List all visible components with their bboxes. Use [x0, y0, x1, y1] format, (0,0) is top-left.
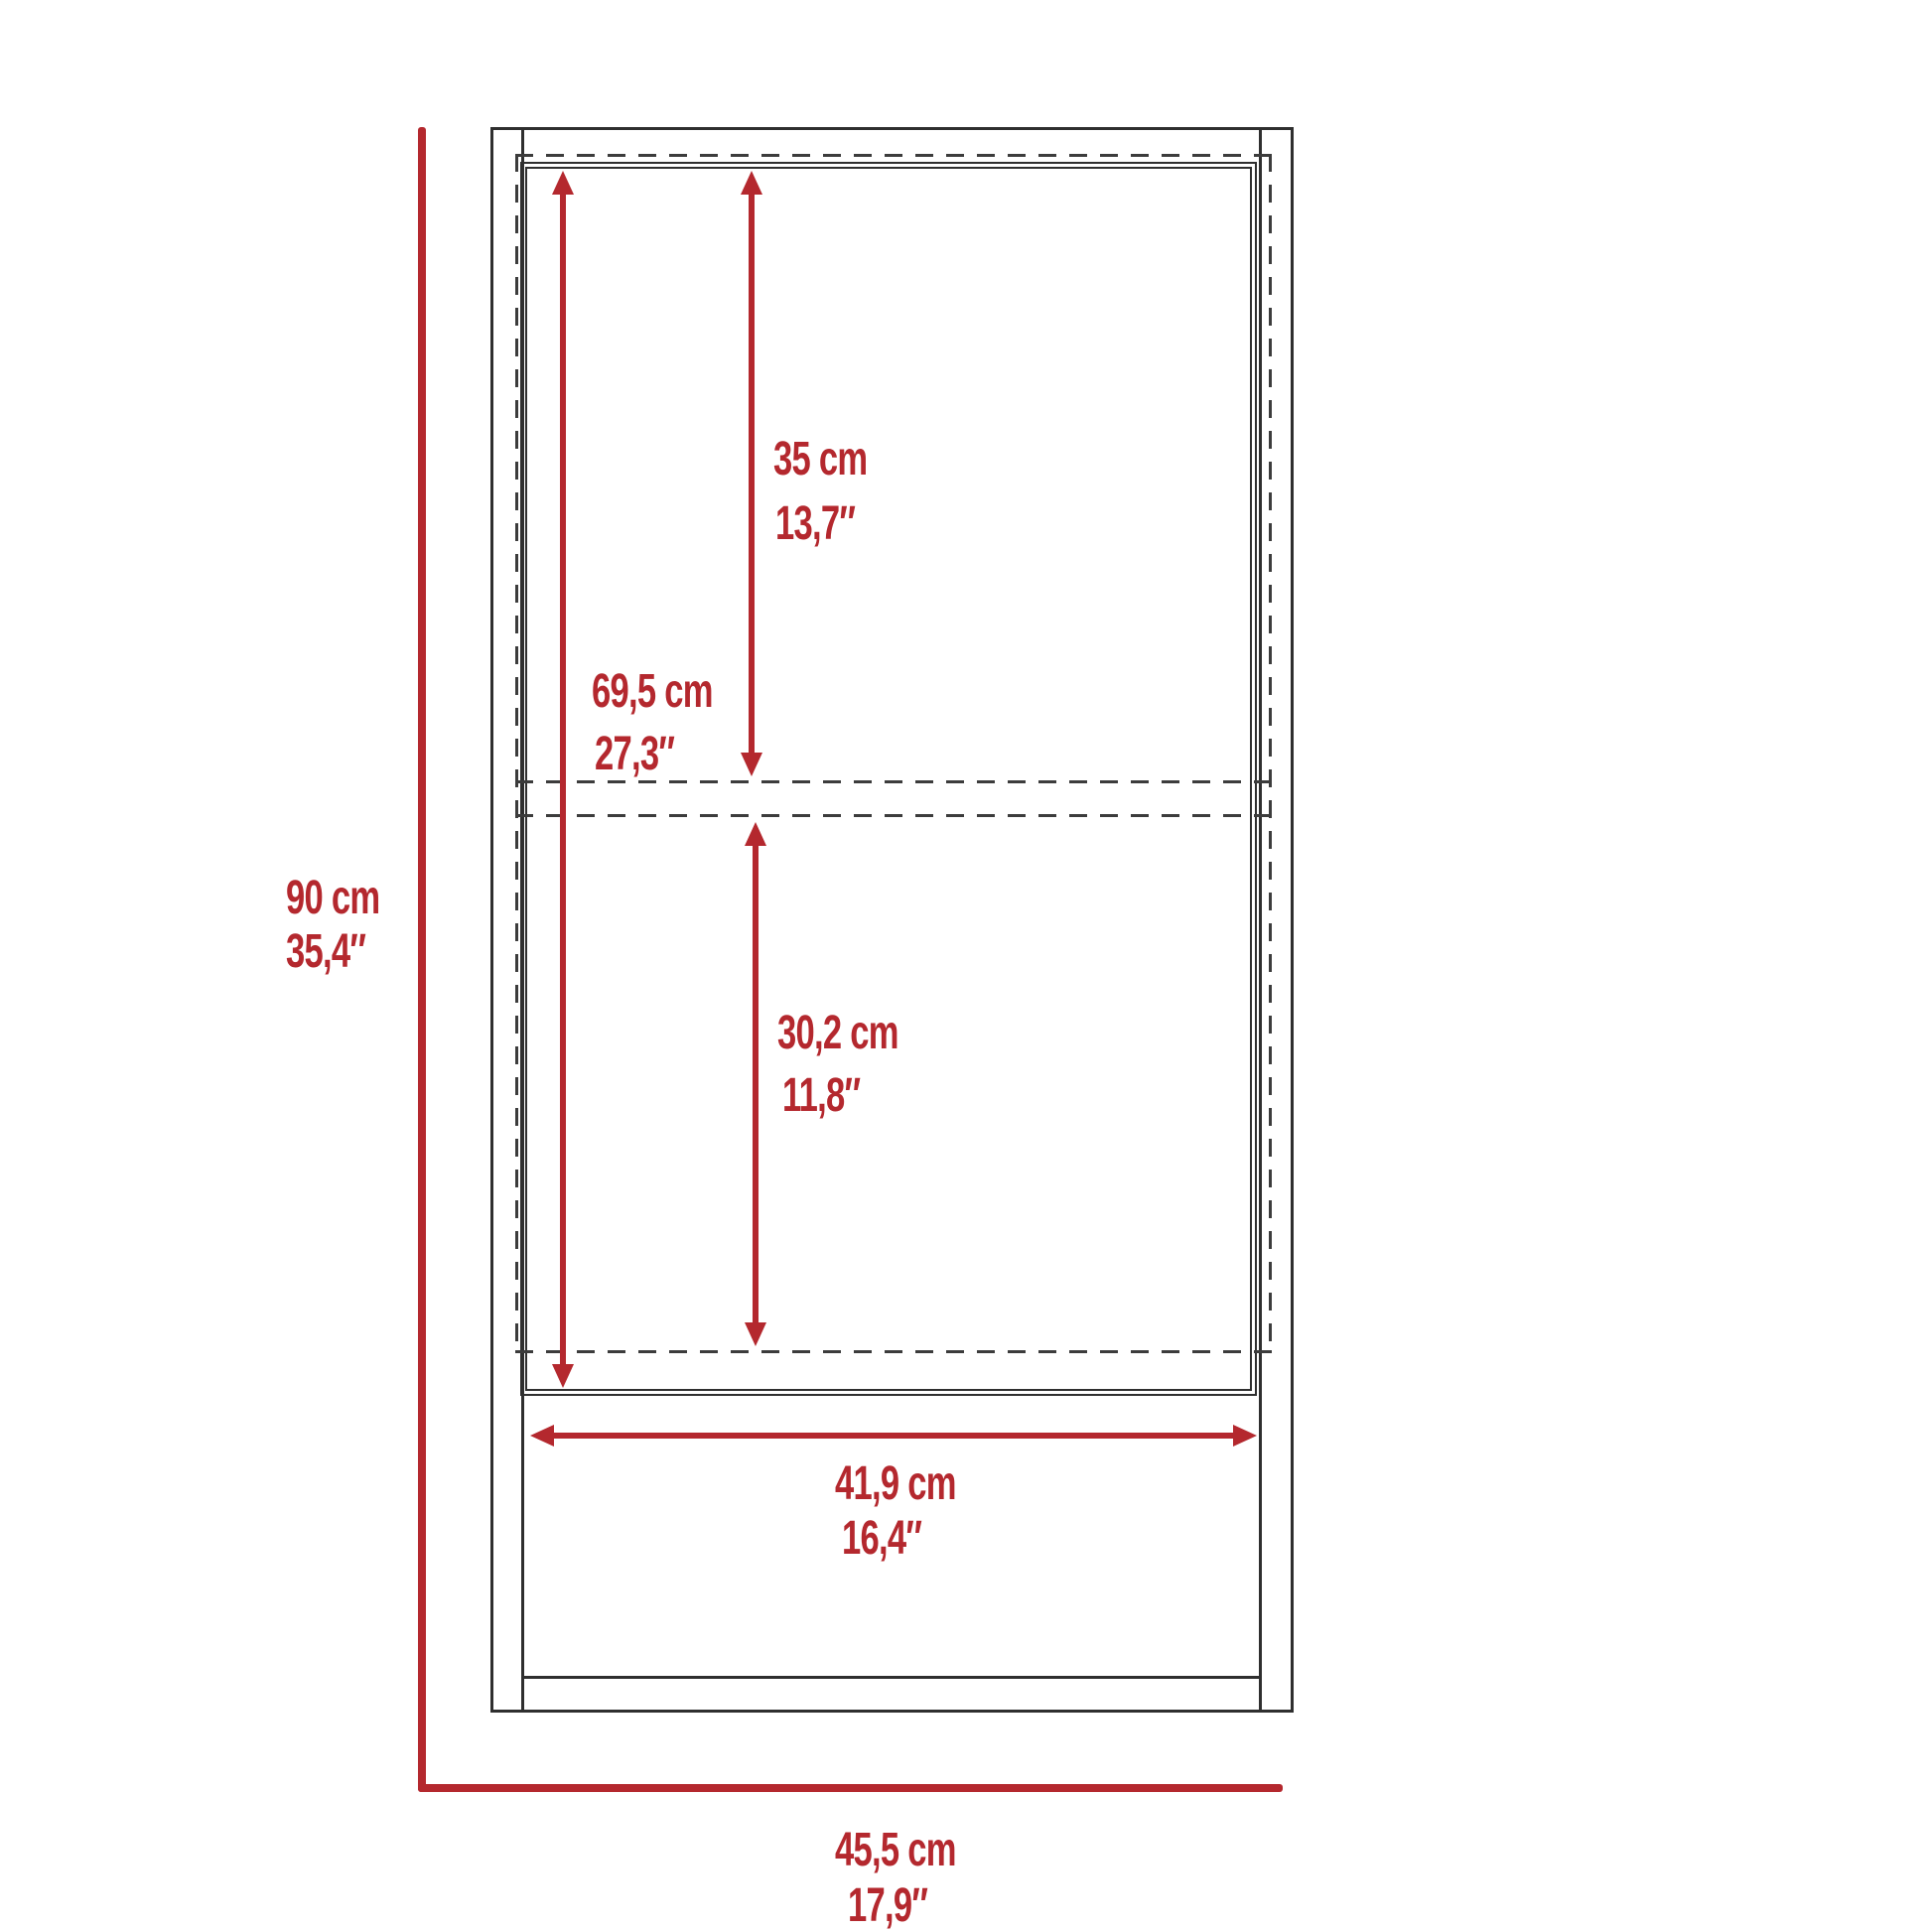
- upper-section-height-label-in: 13,7″: [775, 499, 855, 549]
- hidden-shelf-lower-line: [515, 814, 1272, 817]
- hidden-left-edge-line: [515, 154, 518, 1353]
- overall-width-dimension-line: [418, 1784, 1283, 1792]
- lower-section-height-label-in: 11,8″: [782, 1071, 860, 1121]
- door-height-label-in: 27,3″: [595, 730, 674, 779]
- arrow-down-icon: [552, 1364, 574, 1388]
- arrow-shaft: [753, 842, 759, 1326]
- right-panel-inner-line: [1259, 127, 1262, 1713]
- interior-width-label-in: 16,4″: [842, 1514, 921, 1564]
- arrow-down-icon: [741, 753, 762, 776]
- overall-width-label-in: 17,9″: [848, 1881, 927, 1931]
- arrow-shaft: [550, 1433, 1237, 1439]
- upper-section-height-label-cm: 35 cm: [773, 435, 867, 484]
- arrow-shaft: [560, 191, 566, 1368]
- lower-section-height-label-cm: 30,2 cm: [777, 1009, 898, 1058]
- overall-width-label-cm: 45,5 cm: [835, 1826, 956, 1875]
- overall-height-dimension-line: [418, 127, 426, 1792]
- arrow-shaft: [749, 191, 755, 757]
- arrow-right-icon: [1233, 1425, 1257, 1447]
- hidden-right-edge-line: [1269, 154, 1272, 1353]
- interior-width-arrow: [530, 1425, 1257, 1447]
- overall-height-label-in: 35,4″: [286, 927, 365, 977]
- hidden-shelf-upper-line: [515, 780, 1272, 783]
- bottom-shelf-top-line: [523, 1676, 1260, 1679]
- upper-section-height-arrow: [741, 171, 762, 776]
- door-height-arrow: [552, 171, 574, 1388]
- interior-width-label-cm: 41,9 cm: [835, 1459, 956, 1509]
- hidden-top-edge-line: [515, 154, 1272, 157]
- overall-height-label-cm: 90 cm: [286, 874, 379, 923]
- lower-section-height-arrow: [745, 822, 766, 1346]
- arrow-down-icon: [745, 1322, 766, 1346]
- dimension-diagram: 35 cm 13,7″ 69,5 cm 27,3″ 90 cm 35,4″ 30…: [0, 0, 1932, 1932]
- hidden-bottom-shelf-line: [515, 1350, 1272, 1353]
- door-height-label-cm: 69,5 cm: [592, 667, 713, 717]
